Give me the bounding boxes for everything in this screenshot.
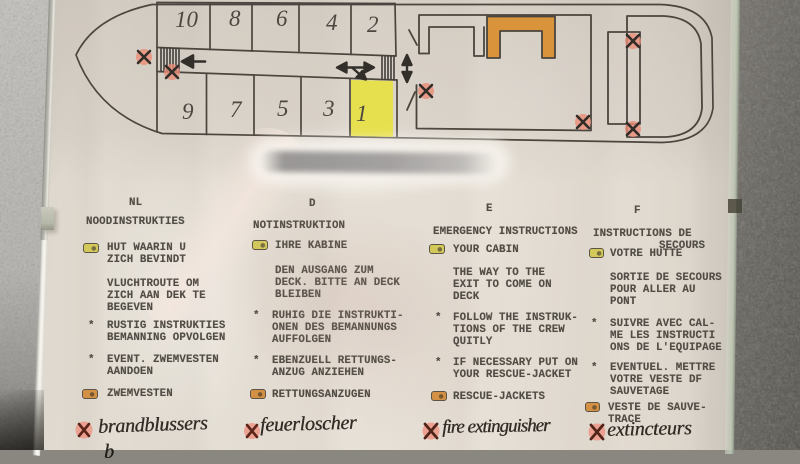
svg-text:10: 10 xyxy=(175,7,199,32)
svg-text:3: 3 xyxy=(322,96,335,121)
svg-text:1: 1 xyxy=(356,101,368,126)
svg-text:6: 6 xyxy=(276,6,288,31)
svg-text:9: 9 xyxy=(182,99,194,124)
svg-text:4: 4 xyxy=(326,10,338,35)
svg-text:2: 2 xyxy=(367,12,379,37)
svg-text:7: 7 xyxy=(230,97,243,122)
svg-text:5: 5 xyxy=(277,96,289,121)
svg-text:8: 8 xyxy=(229,6,241,31)
